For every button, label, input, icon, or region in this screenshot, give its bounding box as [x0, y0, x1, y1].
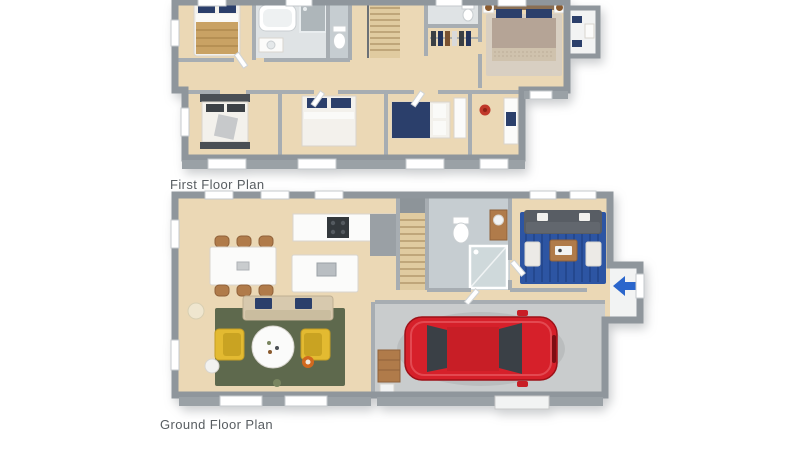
floor-plans-page: First Floor Plan: [0, 0, 800, 457]
ground-floor-plan: [165, 190, 645, 414]
bed-dark-frame: [200, 94, 250, 149]
bed-blue-pillows: [302, 96, 356, 146]
ottoman-left: [525, 242, 540, 266]
coffee-table: [550, 240, 577, 261]
vanity: [259, 38, 283, 52]
sectional-sofa: [524, 210, 602, 234]
shower: [470, 246, 507, 288]
red-car: [405, 310, 557, 387]
toilet: [453, 223, 469, 243]
toilet-ensuite: [462, 4, 474, 21]
mirror-top: [517, 310, 528, 316]
windshield: [499, 323, 522, 374]
fabric-sofa: [243, 296, 333, 320]
garage-door: [495, 396, 549, 409]
floor-lamp: [188, 303, 204, 319]
wardrobe: [454, 98, 466, 138]
ground-floor-label: Ground Floor Plan: [160, 417, 273, 432]
cooktop: [327, 217, 349, 238]
plant: [273, 379, 281, 387]
shower: [300, 4, 326, 32]
ottoman-right: [586, 242, 601, 266]
yellow-armchair-left: [215, 329, 244, 360]
yellow-armchair-right: [301, 329, 330, 360]
pantry: [370, 214, 396, 256]
mirror-bottom: [517, 381, 528, 387]
rear-window: [427, 325, 447, 372]
staircase-ground-floor: [400, 198, 426, 290]
side-table: [205, 359, 219, 373]
round-coffee-table: [252, 326, 294, 368]
bed-tan: [194, 2, 240, 56]
staircase-first-floor: [368, 2, 400, 58]
dining-set: [210, 236, 276, 296]
car-roof: [447, 327, 499, 371]
bathtub: [259, 5, 296, 31]
toilet-wc: [333, 26, 346, 49]
media-room: [520, 210, 606, 284]
bed-navy-horizontal: [392, 98, 466, 138]
island-sink: [317, 263, 336, 276]
first-floor-plan: [168, 0, 604, 172]
